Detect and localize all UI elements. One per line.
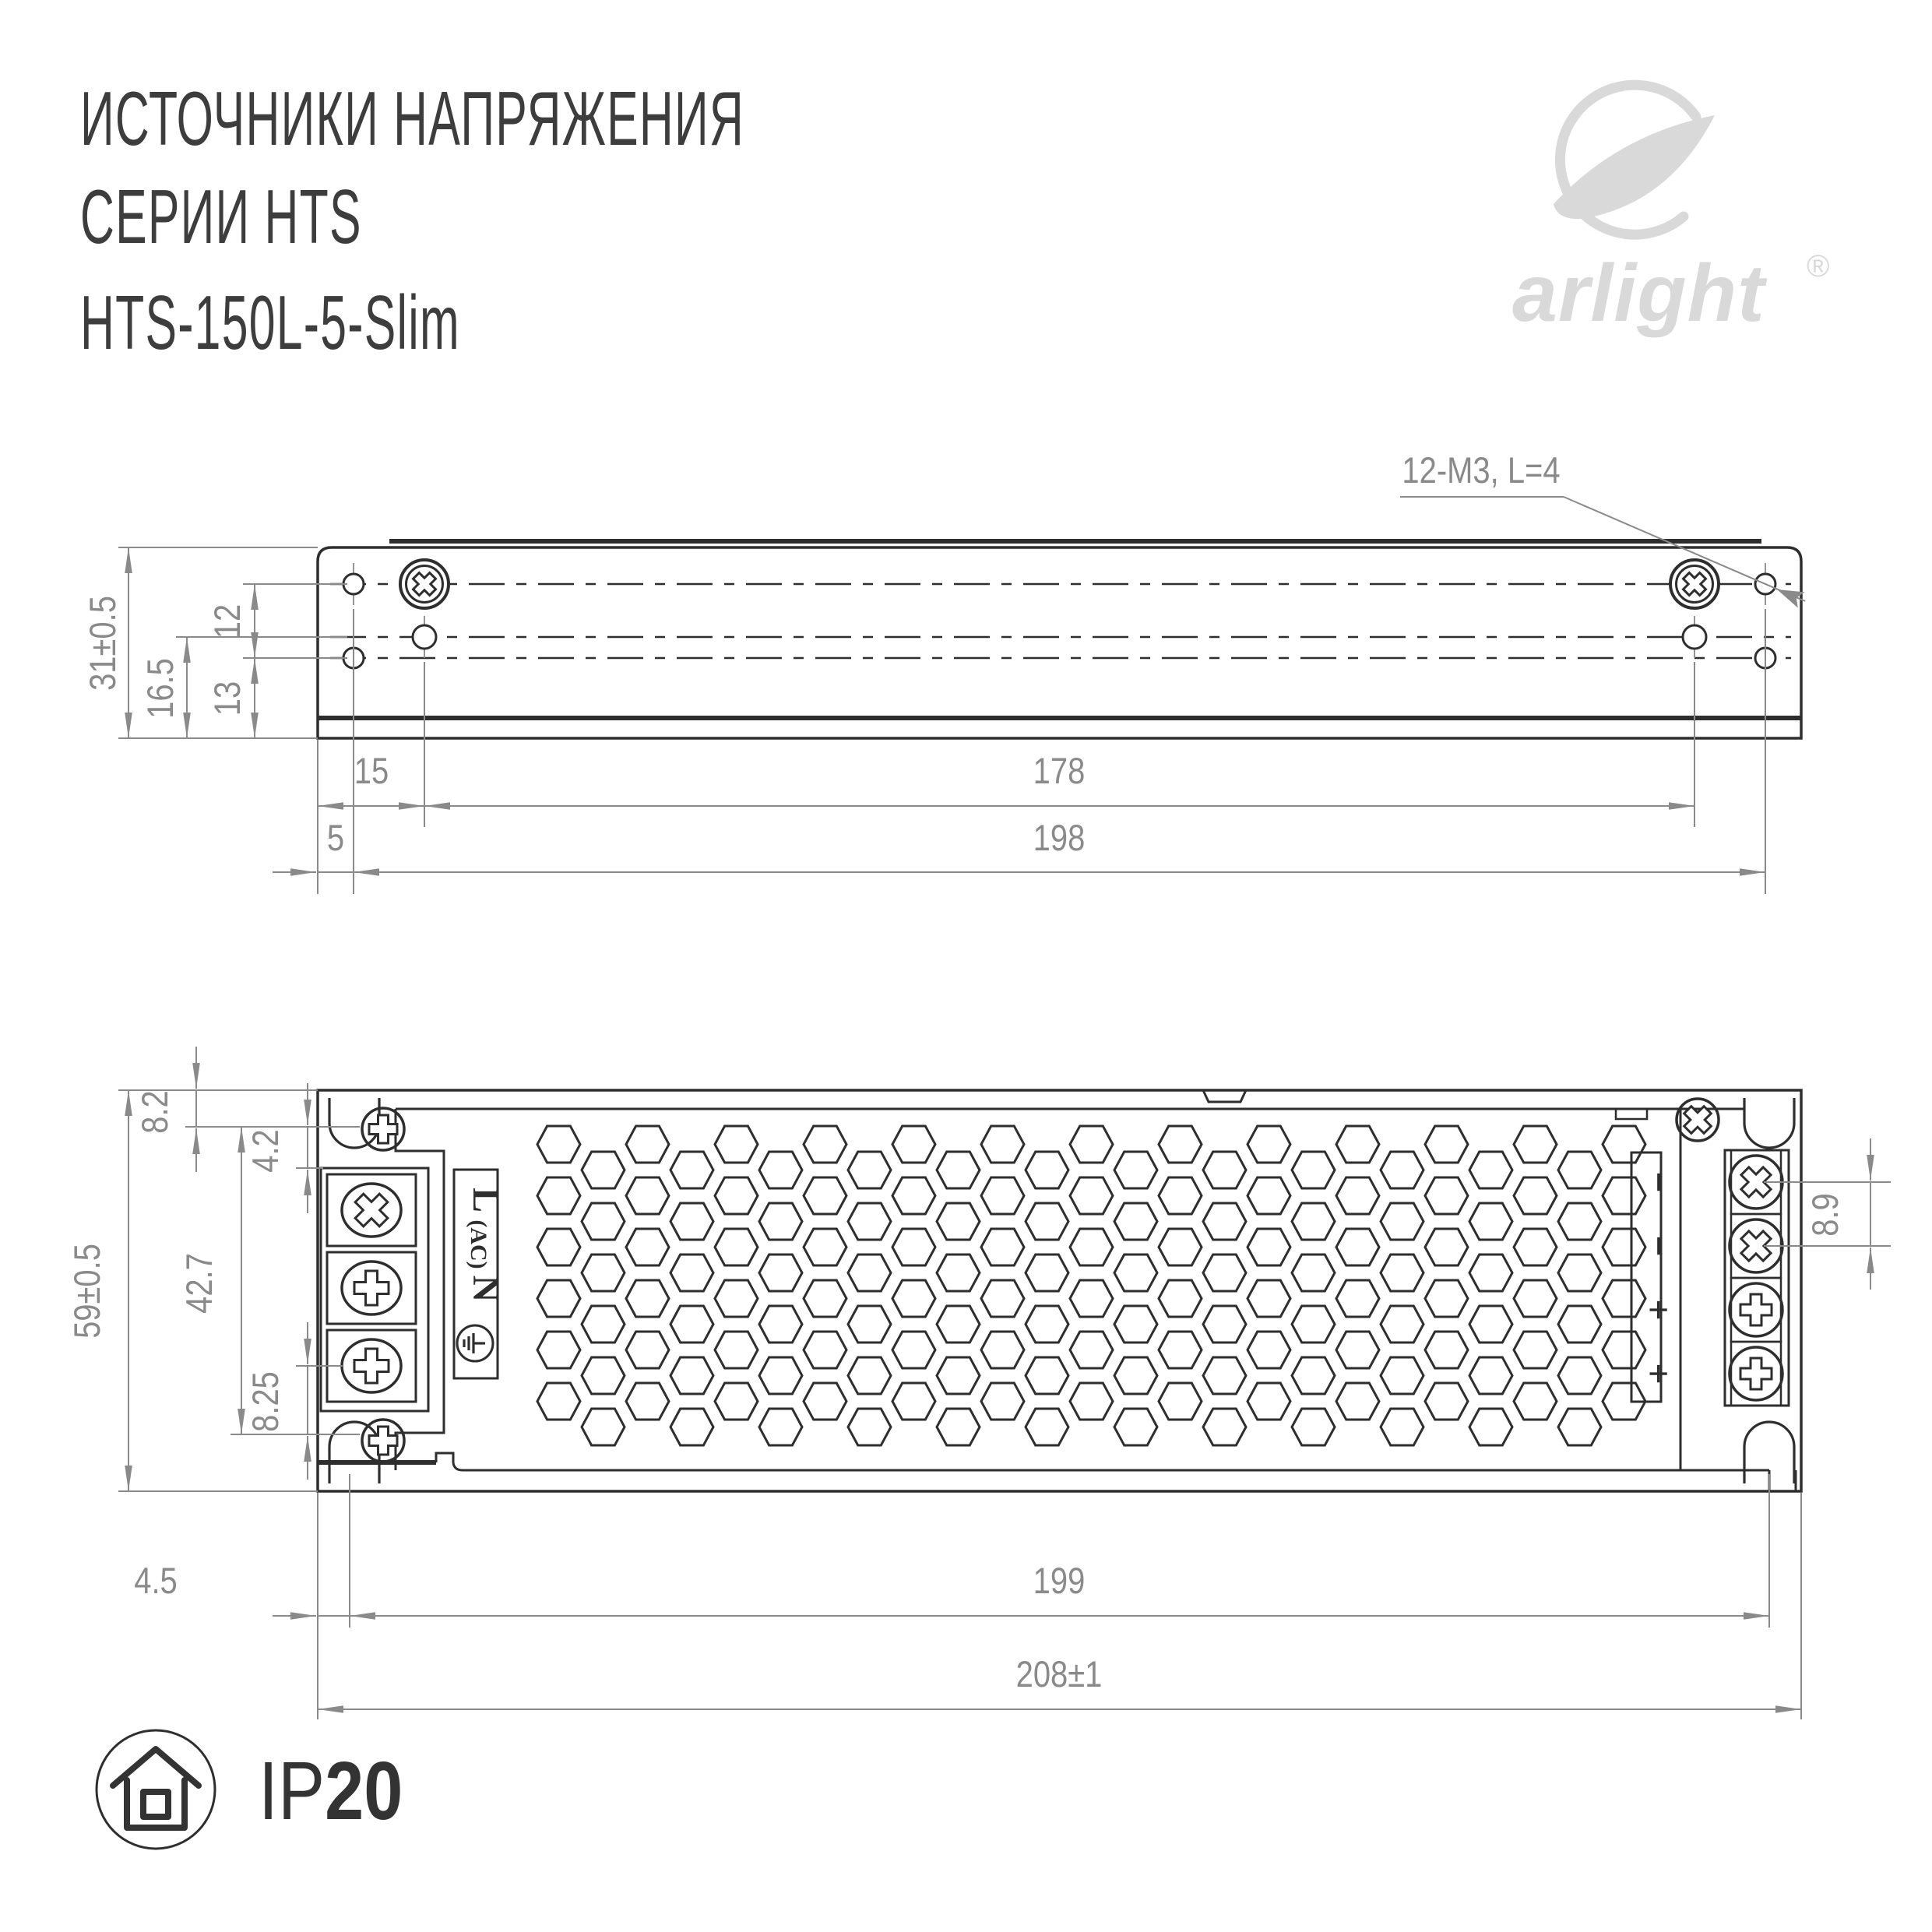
dc-label-4: + bbox=[1638, 1363, 1679, 1384]
side-view-dimensions bbox=[128, 547, 1765, 872]
top-view-dimensions bbox=[128, 1047, 1870, 1709]
ip-rating: IP20 bbox=[259, 1744, 403, 1837]
dim-top-8-25: 8.25 bbox=[246, 1371, 287, 1432]
ip-value: 20 bbox=[325, 1744, 403, 1837]
page-header: ИСТОЧНИКИ НАПРЯЖЕНИЯ СЕРИИ HTS HTS-150L-… bbox=[80, 76, 744, 365]
bottom-flange bbox=[318, 1453, 1796, 1491]
logo-registered-mark: ® bbox=[1807, 249, 1829, 283]
dim-side-198: 198 bbox=[1033, 818, 1086, 859]
dim-top-4-2: 4.2 bbox=[246, 1129, 287, 1173]
top-view-extensions bbox=[118, 1090, 1891, 1719]
page-title-line1: ИСТОЧНИКИ НАПРЯЖЕНИЯ bbox=[80, 76, 744, 161]
dim-side-13: 13 bbox=[208, 681, 248, 716]
house-icon bbox=[113, 1749, 199, 1828]
technical-drawing: ИСТОЧНИКИ НАПРЯЖЕНИЯ СЕРИИ HTS HTS-150L-… bbox=[0, 0, 1932, 1932]
dim-side-height: 31±0.5 bbox=[83, 596, 124, 691]
arlight-logo: arlight ® bbox=[1512, 85, 1829, 339]
dim-top-199: 199 bbox=[1033, 1561, 1086, 1602]
ac-terminal-screws bbox=[342, 1184, 401, 1392]
ip-prefix: IP bbox=[259, 1744, 325, 1837]
dim-top-height: 59±0.5 bbox=[68, 1244, 108, 1339]
dim-side-5: 5 bbox=[327, 818, 344, 859]
ac-label-ac: (AC) bbox=[466, 1219, 491, 1269]
datasheet-page: { "title": { "line1": "ИСТОЧНИКИ НАПРЯЖЕ… bbox=[0, 0, 1932, 1932]
dim-top-4-5: 4.5 bbox=[134, 1561, 178, 1602]
dim-side-15: 15 bbox=[354, 751, 389, 792]
dim-top-208: 208±1 bbox=[1016, 1655, 1103, 1695]
dim-side-178: 178 bbox=[1033, 751, 1086, 792]
ac-label-neutral: N bbox=[465, 1276, 506, 1303]
thread-note-text: 12-M3, L=4 bbox=[1402, 451, 1560, 491]
side-view-holes bbox=[343, 560, 1775, 679]
dc-terminal-block: − − + + bbox=[1631, 1150, 1789, 1406]
dim-top-8-9: 8.9 bbox=[1806, 1193, 1846, 1237]
ac-terminal-block: L (AC) N bbox=[321, 1168, 506, 1411]
top-view-drawing: L (AC) N − − + + bbox=[68, 1047, 1891, 1719]
dim-side-16-5: 16.5 bbox=[141, 658, 181, 719]
dim-top-42-7: 42.7 bbox=[180, 1253, 220, 1314]
top-inner-tab bbox=[1616, 1109, 1647, 1119]
logo-text: arlight bbox=[1512, 248, 1768, 339]
ip20-badge: IP20 bbox=[97, 1730, 403, 1849]
earth-ground-icon bbox=[457, 1325, 493, 1361]
page-title-line2: СЕРИИ HTS bbox=[80, 174, 362, 259]
ac-label-line: L bbox=[465, 1188, 506, 1212]
dim-side-12: 12 bbox=[208, 604, 248, 639]
dc-label-1: − bbox=[1638, 1171, 1679, 1192]
hex-vent-grid bbox=[537, 1126, 1645, 1445]
side-view-body bbox=[318, 547, 1801, 738]
logo-swoosh-icon bbox=[1554, 115, 1715, 219]
side-view-drawing: 31±0.5 16.5 12 13 15 178 5 198 12-M3, L=… bbox=[83, 451, 1805, 894]
left-inner-wall bbox=[396, 1109, 444, 1470]
side-view-extensions bbox=[118, 547, 1765, 894]
product-name: HTS-150L-5-Slim bbox=[80, 280, 460, 365]
side-view-centerlines bbox=[330, 584, 1791, 658]
dim-top-8-2: 8.2 bbox=[135, 1090, 176, 1134]
top-edge-notch bbox=[1203, 1090, 1246, 1102]
